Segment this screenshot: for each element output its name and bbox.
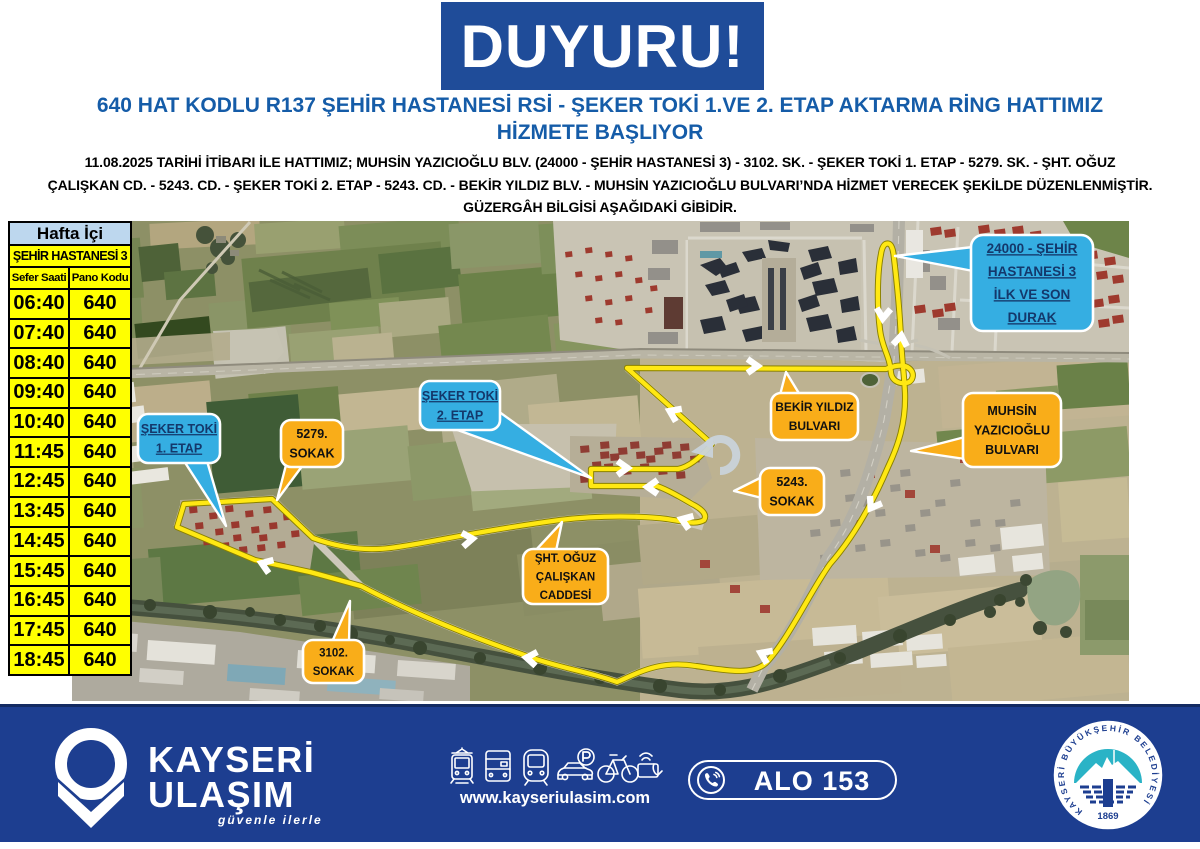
svg-text:HASTANESİ 3: HASTANESİ 3 [988,264,1077,279]
svg-text:5279.: 5279. [296,427,327,441]
svg-text:ŞEKER TOKİ: ŞEKER TOKİ [141,421,217,436]
svg-text:BEKİR YILDIZ: BEKİR YILDIZ [775,399,853,414]
svg-text:SOKAK: SOKAK [769,495,814,509]
svg-text:2. ETAP: 2. ETAP [437,409,483,423]
svg-text:3102.: 3102. [319,647,348,659]
svg-text:ÇALIŞKAN: ÇALIŞKAN [536,572,595,584]
svg-text:MUHSİN: MUHSİN [987,403,1036,418]
svg-text:1869: 1869 [1097,811,1118,822]
svg-text:5243.: 5243. [776,475,807,489]
svg-text:İLK VE SON: İLK VE SON [994,287,1071,302]
svg-text:BULVARI: BULVARI [985,443,1039,457]
svg-text:BULVARI: BULVARI [789,419,841,433]
svg-text:CADDESİ: CADDESİ [540,589,592,602]
svg-text:1. ETAP: 1. ETAP [156,442,202,456]
svg-text:YAZICIOĞLU: YAZICIOĞLU [974,422,1050,437]
svg-text:ŞHT. OĞUZ: ŞHT. OĞUZ [535,552,596,565]
svg-text:24000 - ŞEHİR: 24000 - ŞEHİR [987,241,1078,256]
svg-text:ŞEKER TOKİ: ŞEKER TOKİ [422,388,498,403]
svg-text:SOKAK: SOKAK [313,666,355,678]
svg-text:SOKAK: SOKAK [289,447,334,461]
svg-text:DURAK: DURAK [1008,310,1057,325]
